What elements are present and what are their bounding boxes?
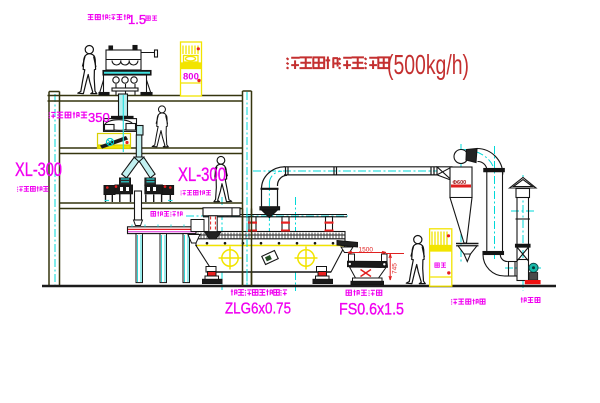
svg-text:1500: 1500 (359, 247, 374, 254)
svg-text:XL-300: XL-300 (178, 165, 226, 186)
svg-text:ZLG6x0.75: ZLG6x0.75 (225, 301, 291, 318)
svg-text:(500kg/h): (500kg/h) (387, 49, 469, 80)
svg-text:800: 800 (183, 72, 199, 83)
svg-text:745: 745 (392, 263, 399, 274)
svg-text:350: 350 (88, 110, 110, 125)
svg-text:XL-300: XL-300 (15, 160, 62, 181)
svg-text:Φ600: Φ600 (453, 180, 467, 186)
svg-text:1.5: 1.5 (128, 12, 146, 27)
svg-text:FS0.6x1.5: FS0.6x1.5 (339, 300, 404, 319)
